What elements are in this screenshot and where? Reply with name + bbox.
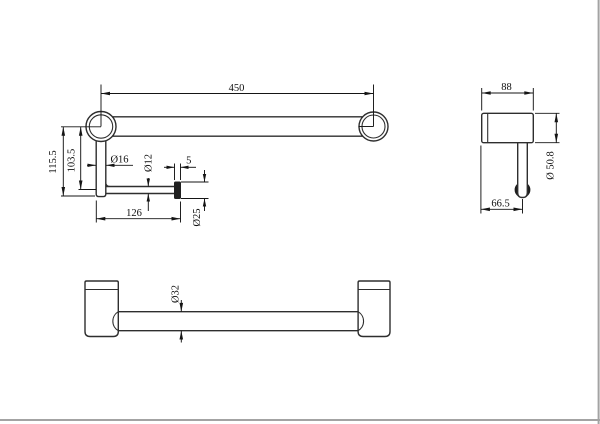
dim-label-bar-diameter: Ø32	[171, 285, 182, 303]
dim-bar-diameter: Ø32	[171, 285, 184, 343]
dim-depth-88: 88	[482, 82, 534, 111]
arrowhead	[555, 113, 559, 122]
arrowhead	[62, 127, 66, 136]
arrowhead	[62, 187, 66, 196]
window-right-edge	[598, 0, 600, 424]
plan-view: Ø32	[85, 281, 390, 343]
arrowhead	[101, 92, 110, 96]
arrowhead	[524, 91, 533, 95]
dim-label-depth: 88	[501, 82, 512, 93]
dim-label-overall-drop: 115.5	[48, 150, 59, 173]
dim-post-diameter: Ø16	[87, 155, 133, 168]
arrowhead	[172, 217, 181, 221]
arrowhead	[147, 194, 150, 202]
side-drop-rod	[518, 143, 528, 198]
window-bottom-edge	[0, 419, 600, 421]
dim-label-flange-diameter: Ø 50.8	[546, 151, 557, 180]
technical-drawing-canvas: 450 115.5 103.5 Ø16	[0, 0, 600, 424]
arrowhead	[180, 303, 184, 312]
arrowhead	[514, 208, 523, 212]
dim-label-cap-thickness: 5	[186, 156, 191, 167]
plan-right-cap	[358, 281, 390, 337]
arrowhead	[555, 134, 559, 143]
arrowhead	[96, 217, 105, 221]
arrowhead	[79, 127, 83, 136]
dim-cap-thickness: 5	[164, 156, 196, 181]
dim-rod-offset-66: 66.5	[481, 146, 523, 214]
arrowhead	[481, 208, 490, 212]
dim-label-rod-offset: 66.5	[491, 199, 509, 210]
dim-length-450: 450	[101, 83, 374, 127]
front-view: 450 115.5 103.5 Ø16	[48, 83, 388, 227]
dim-label-drop-to-rod: 103.5	[67, 149, 78, 173]
dim-label-rod-diameter: Ø12	[144, 154, 155, 172]
arrowhead	[88, 164, 97, 167]
arrowhead	[203, 174, 206, 182]
grab-bar	[101, 117, 374, 136]
side-view: 88 Ø 50.8 66.5	[481, 82, 560, 214]
roll-rod	[103, 182, 181, 199]
arrowhead	[180, 331, 184, 340]
arrowhead	[365, 92, 374, 96]
dim-label-length: 450	[229, 83, 245, 94]
drop-post	[96, 138, 106, 197]
arrowhead	[79, 181, 83, 190]
dim-label-rod-length: 126	[126, 208, 142, 219]
arrowhead	[203, 199, 206, 207]
roll-rod-cap	[175, 182, 181, 199]
arrowhead	[167, 166, 175, 169]
dim-flange-diameter: Ø 50.8	[535, 113, 560, 179]
arrowhead	[482, 91, 491, 95]
dim-rod-length-126: 126	[96, 201, 180, 223]
dim-label-cap-diameter: Ø25	[192, 208, 203, 226]
dim-rod-diameter: Ø12	[144, 154, 155, 211]
dim-label-post-diameter: Ø16	[110, 155, 128, 166]
dim-cap-diameter: Ø25	[181, 170, 209, 227]
arrowhead	[147, 179, 150, 187]
plan-left-cap	[85, 281, 118, 337]
side-body	[482, 113, 534, 142]
plan-bar	[118, 312, 358, 331]
